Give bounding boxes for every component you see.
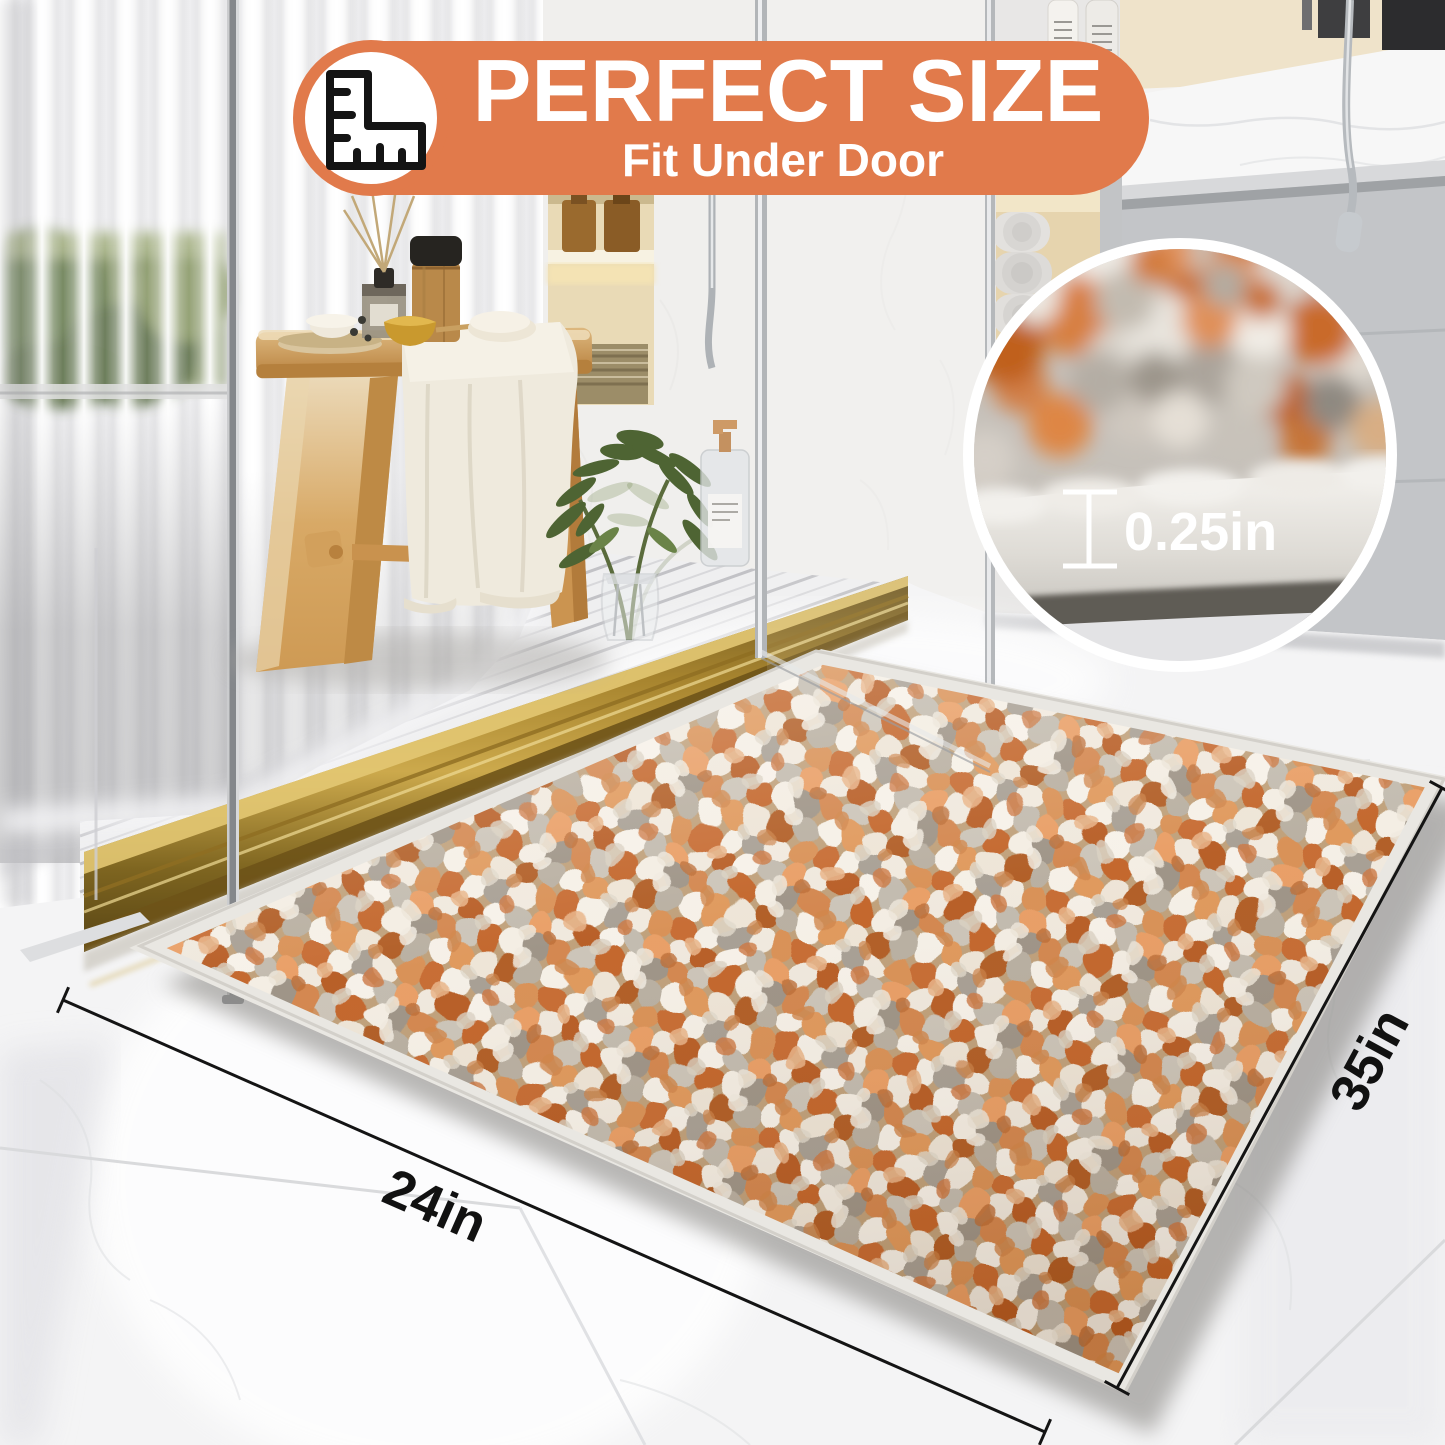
svg-text:Fit Under Door: Fit Under Door: [622, 134, 944, 186]
svg-text:0.25in: 0.25in: [1124, 502, 1277, 562]
svg-text:PERFECT SIZE: PERFECT SIZE: [473, 41, 1104, 140]
